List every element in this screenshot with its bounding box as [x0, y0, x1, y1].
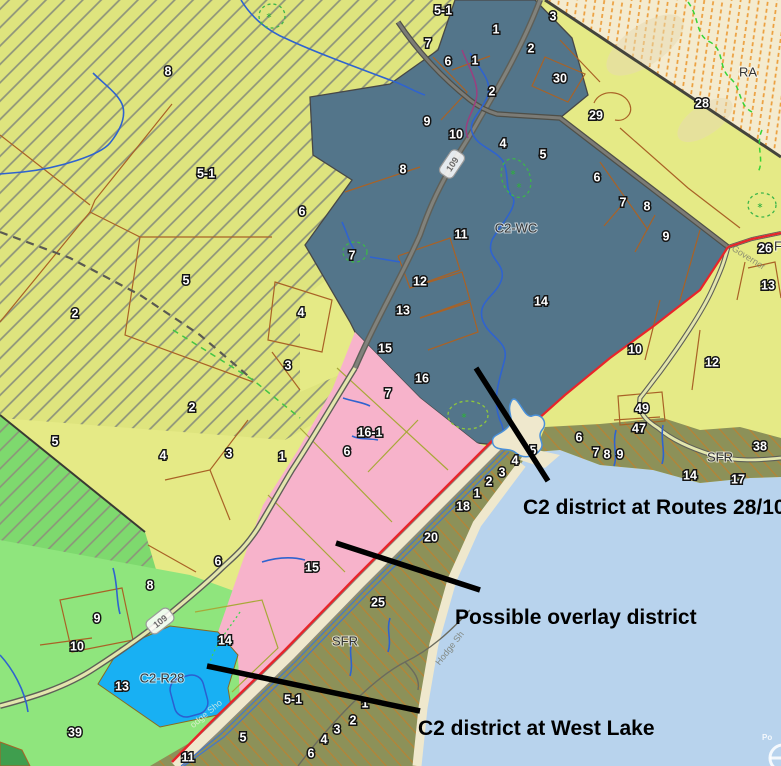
- parcel-label: 15: [305, 561, 319, 575]
- parcel-label: 4: [500, 137, 507, 151]
- parcel-label: 47: [632, 422, 646, 436]
- parcel-label: 8: [400, 163, 407, 177]
- zone-label: F: [774, 239, 781, 254]
- parcel-label: 10: [628, 343, 642, 357]
- parcel-label: 7: [385, 387, 392, 401]
- zone-label: SFR: [332, 634, 358, 649]
- parcel-label: 8: [644, 200, 651, 214]
- parcel-label: 10: [449, 128, 463, 142]
- parcel-label: 11: [454, 228, 467, 242]
- parcel-label: 9: [663, 230, 670, 244]
- parcel-label: 1: [279, 450, 286, 464]
- parcel-label: 5: [540, 148, 547, 162]
- parcel-label: 6: [594, 171, 601, 185]
- parcel-label: 1: [493, 23, 500, 37]
- parcel-label: 3: [499, 466, 506, 480]
- parcel-label: 15: [378, 342, 392, 356]
- parcel-label: 13: [396, 304, 410, 318]
- parcel-label: 4: [321, 733, 328, 747]
- parcel-label: 26: [758, 242, 772, 256]
- watermark-text: Po: [762, 733, 772, 742]
- zoning-map[interactable]: ∗∗∗ ∗∗∗ GovernorHodge Shodge Sho 109109 …: [0, 0, 781, 766]
- parcel-label: 7: [425, 37, 432, 51]
- parcel-label: 3: [226, 447, 233, 461]
- parcel-label: 39: [68, 726, 82, 740]
- zone-label: SFR: [707, 450, 733, 465]
- parcel-label: 9: [424, 115, 431, 129]
- svg-text:∗: ∗: [266, 11, 273, 20]
- zone-label: C2-R28: [140, 671, 185, 686]
- annotation-text: C2 district at Routes 28/109: [523, 496, 781, 519]
- parcel-label: 9: [617, 448, 624, 462]
- zone-label: RA: [739, 65, 757, 80]
- parcel-label: 4: [512, 454, 519, 468]
- parcel-label: 14: [218, 634, 232, 648]
- parcel-label: 30: [553, 72, 567, 86]
- parcel-label: 9: [94, 612, 101, 626]
- annotation-text: Possible overlay district: [455, 606, 697, 629]
- parcel-label: 8: [604, 448, 611, 462]
- parcel-label: 38: [753, 440, 767, 454]
- annotation-text: C2 district at West Lake: [418, 717, 655, 740]
- parcel-label: 2: [189, 401, 196, 415]
- parcel-label: 6: [308, 747, 315, 761]
- parcel-label: 8: [165, 65, 172, 79]
- parcel-label: 8: [147, 579, 154, 593]
- svg-text:∗: ∗: [757, 201, 764, 210]
- parcel-label: 6: [299, 205, 306, 219]
- parcel-label: 1: [474, 487, 481, 501]
- parcel-label: 5-1: [197, 167, 215, 181]
- zone-label: C2-WC: [495, 221, 538, 236]
- parcel-label: 5: [183, 274, 190, 288]
- parcel-label: 7: [620, 196, 627, 210]
- parcel-label: 1: [472, 54, 479, 68]
- parcel-label: 2: [489, 85, 496, 99]
- svg-text:∗: ∗: [461, 411, 468, 420]
- parcel-label: 6: [215, 555, 222, 569]
- parcel-label: 5-1: [434, 4, 452, 18]
- parcel-label: 14: [534, 295, 548, 309]
- parcel-label: 25: [371, 596, 385, 610]
- parcel-label: 20: [424, 531, 438, 545]
- parcel-label: 28: [695, 97, 709, 111]
- parcel-label: 14: [683, 469, 697, 483]
- parcel-label: 29: [589, 109, 603, 123]
- parcel-label: 3: [285, 359, 292, 373]
- parcel-label: 13: [115, 680, 129, 694]
- parcel-label: 10: [70, 640, 84, 654]
- parcel-label: 3: [550, 10, 557, 24]
- zoning-map-stage: ∗∗∗ ∗∗∗ GovernorHodge Shodge Sho 109109 …: [0, 0, 781, 766]
- svg-text:∗: ∗: [516, 181, 523, 190]
- parcel-label: 18: [456, 500, 470, 514]
- parcel-label: 2: [528, 42, 535, 56]
- parcel-label: 2: [350, 714, 357, 728]
- parcel-label: 5: [52, 435, 59, 449]
- svg-text:∗: ∗: [510, 168, 517, 177]
- parcel-label: 13: [761, 279, 775, 293]
- parcel-label: 16: [415, 372, 429, 386]
- parcel-label: 6: [576, 431, 583, 445]
- parcel-label: 6: [344, 445, 351, 459]
- parcel-label: 5-1: [284, 693, 302, 707]
- parcel-label: 2: [486, 475, 493, 489]
- parcel-label: 12: [413, 275, 427, 289]
- parcel-label: 7: [349, 249, 356, 263]
- parcel-label: 4: [298, 306, 305, 320]
- parcel-label: 4: [160, 449, 167, 463]
- parcel-label: 2: [72, 307, 79, 321]
- parcel-label: 49: [635, 402, 649, 416]
- parcel-label: 12: [705, 356, 719, 370]
- parcel-label: 6: [445, 55, 452, 69]
- parcel-label: 7: [593, 446, 600, 460]
- parcel-label: 3: [334, 723, 341, 737]
- parcel-label: 11: [181, 751, 194, 765]
- parcel-label: 17: [731, 473, 745, 487]
- parcel-label: 5: [240, 731, 247, 745]
- parcel-label: 16-1: [357, 426, 382, 440]
